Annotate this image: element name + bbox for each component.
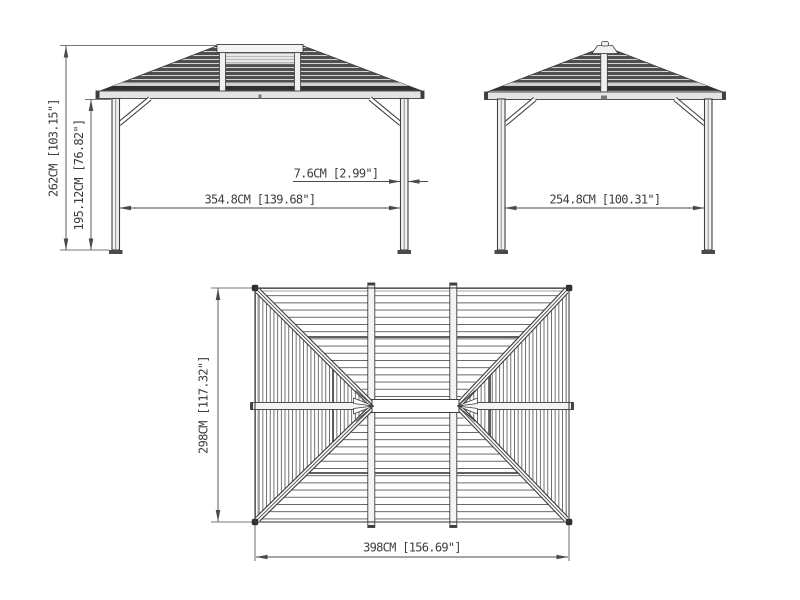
gazebo-technical-drawing: 262CM [103.15"] 195.12CM [76.82"] 354.8C… (0, 0, 800, 600)
front-ridge-cap (217, 45, 303, 53)
side-peak-finial (602, 42, 609, 47)
gazebo-technical-drawing-page: 262CM [103.15"] 195.12CM [76.82"] 354.8C… (0, 0, 800, 600)
dim-front-post-height: 195.12CM [76.82"] (72, 100, 111, 251)
side-ridge-pole (601, 54, 608, 93)
front-brace-right (370, 99, 401, 125)
front-hip-trim-left (220, 53, 226, 92)
dim-top-depth: 298CM [117.32"] (197, 288, 253, 522)
front-eave-cap-right (421, 91, 425, 99)
side-eave-joint (601, 96, 607, 100)
front-roof-eave-bands (100, 83, 422, 91)
dim-front-total-height-label: 262CM [103.15"] (47, 99, 61, 197)
dim-front-post-height-label: 195.12CM [76.82"] (72, 120, 86, 231)
side-peak-cap (592, 46, 618, 54)
front-roof-vent-band (224, 52, 296, 64)
dim-top-depth-label: 298CM [117.32"] (197, 356, 211, 454)
side-eave-cap-right (722, 92, 726, 100)
front-eave-cap-left (96, 91, 100, 99)
front-brace-left (119, 99, 150, 125)
dim-top-width-label: 398CM [156.69"] (363, 541, 461, 555)
side-eave-cap-left (485, 92, 489, 100)
top-view: 298CM [117.32"] 398CM [156.69"] (197, 283, 574, 561)
dim-front-inner-width-label: 354.8CM [139.68"] (205, 193, 316, 207)
dim-top-width: 398CM [156.69"] (255, 525, 569, 561)
front-view: 262CM [103.15"] 195.12CM [76.82"] 354.8C… (47, 45, 429, 255)
front-eave-joint (259, 95, 262, 99)
dim-front-inner-width: 354.8CM [139.68"] (120, 193, 401, 209)
front-hip-trim-right (295, 53, 301, 92)
top-ridge-beam (372, 400, 459, 413)
dim-front-post-width-label: 7.6CM [2.99"] (294, 167, 379, 181)
dim-side-inner-width: 254.8CM [100.31"] (505, 193, 705, 209)
dim-side-inner-width-label: 254.8CM [100.31"] (550, 193, 661, 207)
side-brace-right (675, 99, 705, 124)
side-brace-left (505, 99, 535, 124)
side-view: 254.8CM [100.31"] (485, 42, 726, 255)
